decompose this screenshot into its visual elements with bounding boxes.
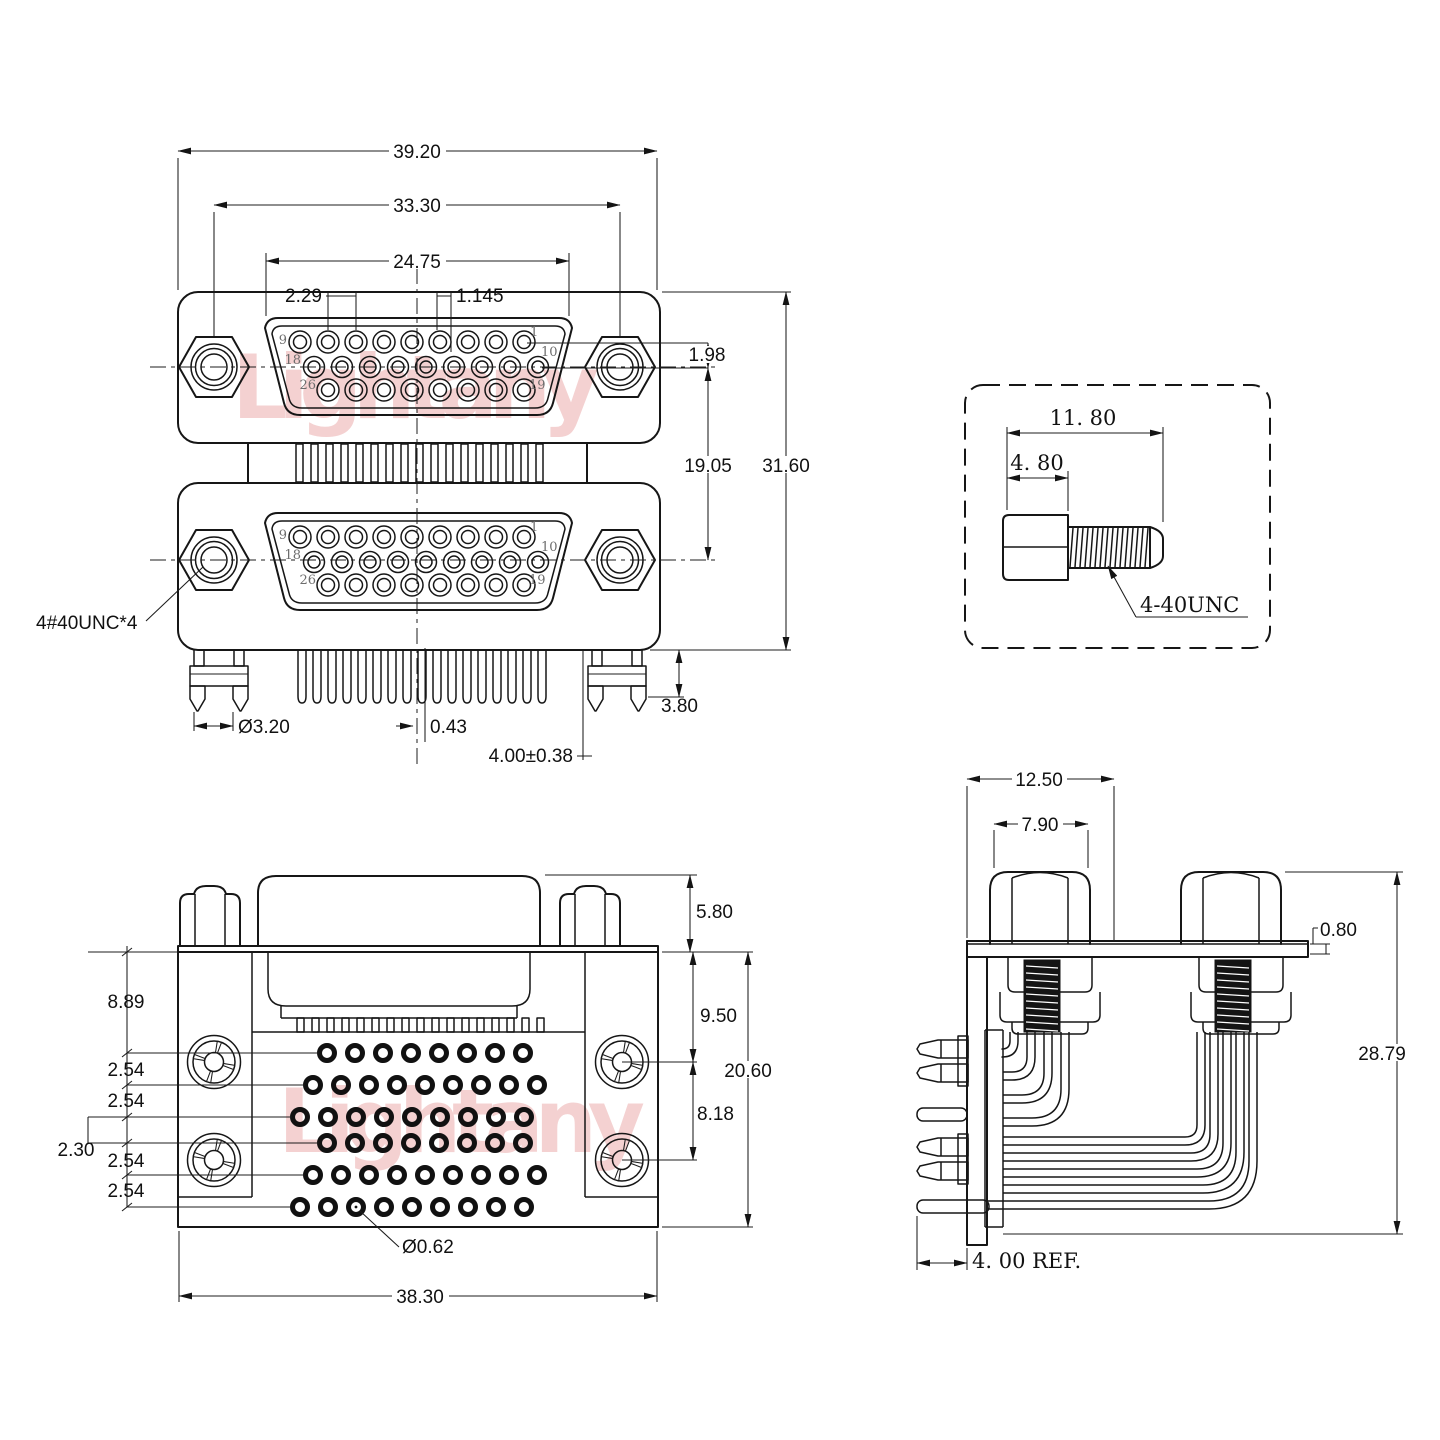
thread-hatching (1070, 528, 1148, 567)
jack-screw (1003, 515, 1163, 580)
solder-tail (448, 650, 456, 703)
sv-standoffs (990, 872, 1281, 944)
dim-port-spacing: 19.05 (684, 456, 732, 477)
insert-tooth (357, 1018, 364, 1032)
thread-line (1115, 528, 1118, 567)
contact-outer (345, 574, 367, 596)
comb-fin (491, 444, 498, 482)
insert-tooth (342, 1018, 349, 1032)
dim-mount-span: 33.30 (393, 196, 441, 217)
dim-row-pitch: 2.54 (108, 1151, 145, 1172)
hole-center-mark (355, 1206, 358, 1209)
contact-outer (457, 574, 479, 596)
contact-outer (472, 552, 493, 573)
contact-inner (490, 531, 503, 544)
pin-label: 18 (284, 353, 301, 368)
screw-slot (223, 1164, 233, 1168)
thread-line (1120, 528, 1123, 567)
contact-outer (373, 526, 395, 548)
dim-row-pitch: 2.54 (108, 1091, 145, 1112)
insert-tooth (327, 1018, 334, 1032)
screw-slot (195, 1055, 205, 1059)
thread-line (1090, 528, 1093, 567)
solder-tail (478, 650, 486, 703)
comb-fin (476, 444, 483, 482)
contact-outer (485, 574, 507, 596)
dim-pin-length-ref: 4. 00 REF. (972, 1249, 1081, 1273)
contact-inner (448, 556, 460, 568)
dim-edge-to-row1: 8.89 (108, 992, 145, 1013)
pcb-hole (418, 1168, 433, 1183)
pcb-hole (488, 1046, 503, 1061)
contact-inner (504, 556, 516, 568)
cad-drawing: Lightany Lightany (0, 0, 1440, 1440)
note-screw-thread: 4#40UNC*4 (36, 613, 138, 634)
solder-tail (388, 650, 396, 703)
bent-pin (1003, 1032, 1236, 1185)
pcb-hole (321, 1200, 336, 1215)
thread-spec-label: 4-40UNC (1140, 593, 1239, 617)
contact-outer (332, 552, 353, 573)
insert-tooth (462, 1018, 469, 1032)
contact-outer (416, 552, 437, 573)
pcb-hole (293, 1200, 308, 1215)
screw-head (188, 1134, 241, 1187)
pcb-hole (433, 1200, 448, 1215)
thread-line (1085, 528, 1088, 567)
thread-line (1130, 528, 1133, 567)
screw-slot (602, 1059, 612, 1061)
solder-tail (433, 650, 441, 703)
solder-tail (328, 650, 336, 703)
contact-inner (336, 556, 348, 568)
contact-inner (322, 579, 335, 592)
comb-fin (431, 444, 438, 482)
dim-bracket-height: 3.80 (661, 696, 698, 717)
contact-outer (457, 526, 479, 548)
front-comb-fins (296, 444, 543, 482)
contact-outer (500, 552, 521, 573)
solder-tail (538, 650, 546, 703)
dim-row-pitch: 2.54 (108, 1060, 145, 1081)
pcb-hole (432, 1046, 447, 1061)
comb-fin (401, 444, 408, 482)
thread-line (1100, 528, 1103, 567)
solder-tail (313, 650, 321, 703)
dim-edge-to-screw: 9.50 (700, 1006, 737, 1027)
comb-fin (326, 444, 333, 482)
solder-tails (298, 650, 546, 703)
contact-inner (378, 531, 391, 544)
insert-tooth (297, 1018, 304, 1032)
thread-line (1070, 528, 1073, 567)
pcb-hole (334, 1168, 349, 1183)
pcb-hole (516, 1046, 531, 1061)
pin-label: 1 (530, 520, 538, 535)
comb-fin (356, 444, 363, 482)
comb-fin (521, 444, 528, 482)
dim-head-length: 4. 80 (1010, 451, 1063, 475)
insert-tooth (492, 1018, 499, 1032)
pcb-hole (404, 1046, 419, 1061)
pin-label: 26 (299, 378, 316, 393)
pcb-hole (489, 1200, 504, 1215)
dim-hole-dia: Ø0.62 (402, 1237, 454, 1258)
insert-tooth (312, 1018, 319, 1032)
solder-tail (343, 650, 351, 703)
pin-label: 9 (279, 333, 287, 348)
pcb-hole (461, 1200, 476, 1215)
contact-outer (444, 552, 465, 573)
contact-inner (350, 579, 363, 592)
dim-face-width: 24.75 (393, 252, 441, 273)
solder-tail (523, 650, 531, 703)
pin-label: 19 (529, 378, 546, 393)
screw-slot (632, 1064, 642, 1066)
insert-tooth (417, 1018, 424, 1032)
thread-line (1075, 528, 1078, 567)
screw-slot (631, 1066, 641, 1070)
contact-outer (317, 526, 339, 548)
bent-pin (1003, 1032, 1205, 1145)
dim-tail-length: 4.00±0.38 (489, 746, 573, 767)
thread-line (1145, 528, 1148, 567)
dim-row-gap: 2.30 (58, 1140, 95, 1161)
contact-inner (490, 579, 503, 592)
screw-slot (224, 1064, 234, 1066)
bent-pin (1003, 1032, 1197, 1137)
dim-overall-height: 31.60 (762, 456, 810, 477)
contact-inner (434, 579, 447, 592)
insert-tooth (537, 1018, 544, 1032)
pcb-hole (362, 1168, 377, 1183)
contact-inner (462, 531, 475, 544)
dim-plate-thickness: 0.80 (1320, 920, 1357, 941)
dim-overall-height: 28.79 (1358, 1044, 1406, 1065)
comb-fin (371, 444, 378, 482)
bent-pin (1003, 1032, 1044, 1095)
bv-silhouette (178, 876, 658, 952)
contact-inner (378, 579, 391, 592)
insert-tooth (507, 1018, 514, 1032)
screw-head (188, 1036, 241, 1089)
insert-tooth (402, 1018, 409, 1032)
dim-standoff-span: 12.50 (1015, 770, 1063, 791)
dim-screw-length: 11. 80 (1050, 406, 1117, 430)
pin-label: 19 (529, 573, 546, 588)
comb-fin (461, 444, 468, 482)
insert-tooth (477, 1018, 484, 1032)
screw-slot (195, 1153, 205, 1157)
sv-standoff-bases (1000, 957, 1291, 1034)
board-lock-left (190, 650, 248, 711)
screw-slot (224, 1162, 234, 1164)
screw-slot (223, 1066, 233, 1070)
sv-bent-pins (987, 1032, 1257, 1209)
screw-slot (211, 1072, 213, 1082)
bv-insert-teeth (297, 1018, 544, 1032)
dim-overall-width: 39.20 (393, 142, 441, 163)
thread-line (1095, 528, 1098, 567)
pin-label: 9 (279, 528, 287, 543)
pcb-hole (517, 1200, 532, 1215)
dim-screw-pitch: 8.18 (697, 1104, 734, 1125)
comb-fin (386, 444, 393, 482)
comb-fin (446, 444, 453, 482)
front-view: 39.20 33.30 24.75 2.29 1.145 1.98 19.05 (36, 142, 815, 767)
contact-inner (462, 579, 475, 592)
pin-label: 1 (530, 325, 538, 340)
dim-bracket-hole: Ø3.20 (238, 717, 290, 738)
dim-standoff-width: 7.90 (1022, 815, 1059, 836)
dim-body-height: 20.60 (724, 1061, 772, 1082)
comb-fin (296, 444, 303, 482)
pin-label: 26 (299, 573, 316, 588)
screw-slot (626, 1043, 630, 1053)
insert-tooth (447, 1018, 454, 1032)
pcb-hole (446, 1168, 461, 1183)
thread-line (1140, 528, 1143, 567)
screw-slot (216, 1042, 218, 1052)
contact-inner (532, 556, 544, 568)
dim-shell-height: 5.80 (696, 902, 733, 923)
comb-fin (341, 444, 348, 482)
dim-row-pitch: 2.54 (108, 1181, 145, 1202)
contact-outer (360, 552, 381, 573)
contact-inner (518, 531, 531, 544)
solder-tail (373, 650, 381, 703)
pcb-hole (306, 1168, 321, 1183)
side-view: 12.50 7.90 0.80 28.79 4. 00 REF. (917, 770, 1411, 1273)
contact-inner (476, 556, 488, 568)
contact-outer (373, 574, 395, 596)
board-lock-right (588, 650, 646, 711)
contact-inner (322, 531, 335, 544)
pin-label: 18 (284, 548, 301, 563)
insert-tooth (387, 1018, 394, 1032)
contact-inner (434, 531, 447, 544)
sv-plate (967, 941, 1308, 957)
contact-outer (485, 526, 507, 548)
pcb-hole (348, 1046, 363, 1061)
screw-slot (194, 1157, 204, 1159)
contact-outer (429, 526, 451, 548)
contact-inner (392, 556, 404, 568)
bent-pin (1003, 1032, 1069, 1126)
pin-label: 10 (541, 345, 558, 360)
port-b-contacts (289, 526, 549, 596)
screw-detail-dims: 11. 80 4. 80 4-40UNC (1007, 406, 1248, 617)
contact-outer (401, 526, 423, 548)
screw-slot (194, 1059, 204, 1061)
thread-line (1080, 528, 1083, 567)
screw-slot (624, 1042, 626, 1052)
contact-outer (401, 574, 423, 596)
screw-slot (218, 1043, 222, 1053)
dim-center-offset: 0.43 (430, 717, 467, 738)
screw-detail-view: 11. 80 4. 80 4-40UNC (965, 385, 1270, 648)
pcb-hole (320, 1046, 335, 1061)
insert-tooth (432, 1018, 439, 1032)
insert-tooth (372, 1018, 379, 1032)
solder-tail (493, 650, 501, 703)
contact-inner (420, 556, 432, 568)
thread-line (1135, 528, 1138, 567)
contact-outer (345, 526, 367, 548)
thread-line (1125, 528, 1128, 567)
drawing-sheet: Lightany Lightany (0, 0, 1440, 1440)
screw-slot (603, 1055, 613, 1059)
pin-label: 10 (541, 540, 558, 555)
pcb-hole (530, 1168, 545, 1183)
pcb-hole (376, 1046, 391, 1061)
solder-tail (508, 650, 516, 703)
screw-slot (207, 1071, 211, 1081)
solder-tail (298, 650, 306, 703)
contact-inner (308, 556, 320, 568)
contact-outer (317, 574, 339, 596)
contact-outer (304, 552, 325, 573)
sv-dimensions: 12.50 7.90 0.80 28.79 4. 00 REF. (917, 770, 1411, 1273)
contact-outer (429, 574, 451, 596)
comb-fin (311, 444, 318, 482)
sv-left-protrusions (917, 1036, 989, 1213)
dim-row-offset: 1.98 (689, 345, 726, 366)
screw-slot (216, 1140, 218, 1150)
pcb-hole (502, 1168, 517, 1183)
screw-slot (207, 1169, 211, 1179)
pcb-hole (390, 1168, 405, 1183)
contact-inner (364, 556, 376, 568)
contact-inner (294, 531, 307, 544)
thread-line (1105, 528, 1108, 567)
solder-tail (403, 650, 411, 703)
insert-tooth (522, 1018, 529, 1032)
pcb-hole (405, 1200, 420, 1215)
screw-slot (218, 1141, 222, 1151)
solder-tail (358, 650, 366, 703)
comb-fin (506, 444, 513, 482)
pcb-hole (460, 1046, 475, 1061)
pcb-hole (474, 1168, 489, 1183)
contact-inner (350, 531, 363, 544)
dim-body-width: 38.30 (396, 1287, 444, 1308)
solder-tail (463, 650, 471, 703)
dim-pin-pitch: 2.29 (285, 286, 322, 307)
comb-fin (536, 444, 543, 482)
thread-line (1110, 528, 1113, 567)
contact-outer (289, 526, 311, 548)
dim-half-pitch: 1.145 (456, 286, 504, 307)
contact-outer (388, 552, 409, 573)
pcb-hole (377, 1200, 392, 1215)
